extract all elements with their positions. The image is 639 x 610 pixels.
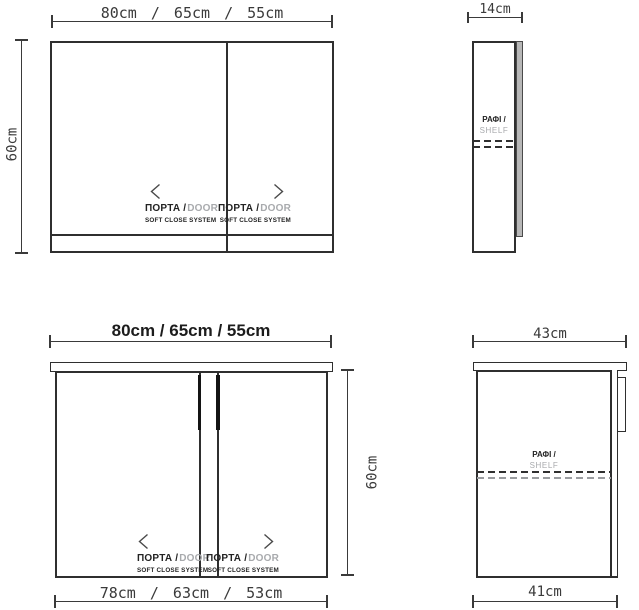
- door-handle-side-profile: [617, 377, 626, 432]
- base-cabinet-side-outline: [476, 370, 612, 578]
- base-side-bottom-depth-dimension-label: 41cm: [473, 584, 617, 600]
- shelf-label-secondary: SHELF: [476, 461, 612, 470]
- base-side-top-depth-dimension-label: 43cm: [473, 326, 627, 342]
- dimension-line: [473, 341, 627, 342]
- shelf-dashed-line: [477, 471, 611, 473]
- shelf-dashed-line: [477, 477, 611, 479]
- dimension-line: [473, 601, 617, 602]
- dimension-tick: [472, 335, 474, 348]
- dimension-tick: [625, 335, 627, 348]
- base-cabinet-side-view: 43cm ΡΑΦΙ / SHELF 41cm: [0, 0, 639, 610]
- shelf-label-primary: ΡΑΦΙ /: [476, 450, 612, 459]
- technical-drawing-canvas: 80cm / 65cm / 55cm 60cm ΠΟΡΤΑ /DOOR SOFT…: [0, 0, 639, 610]
